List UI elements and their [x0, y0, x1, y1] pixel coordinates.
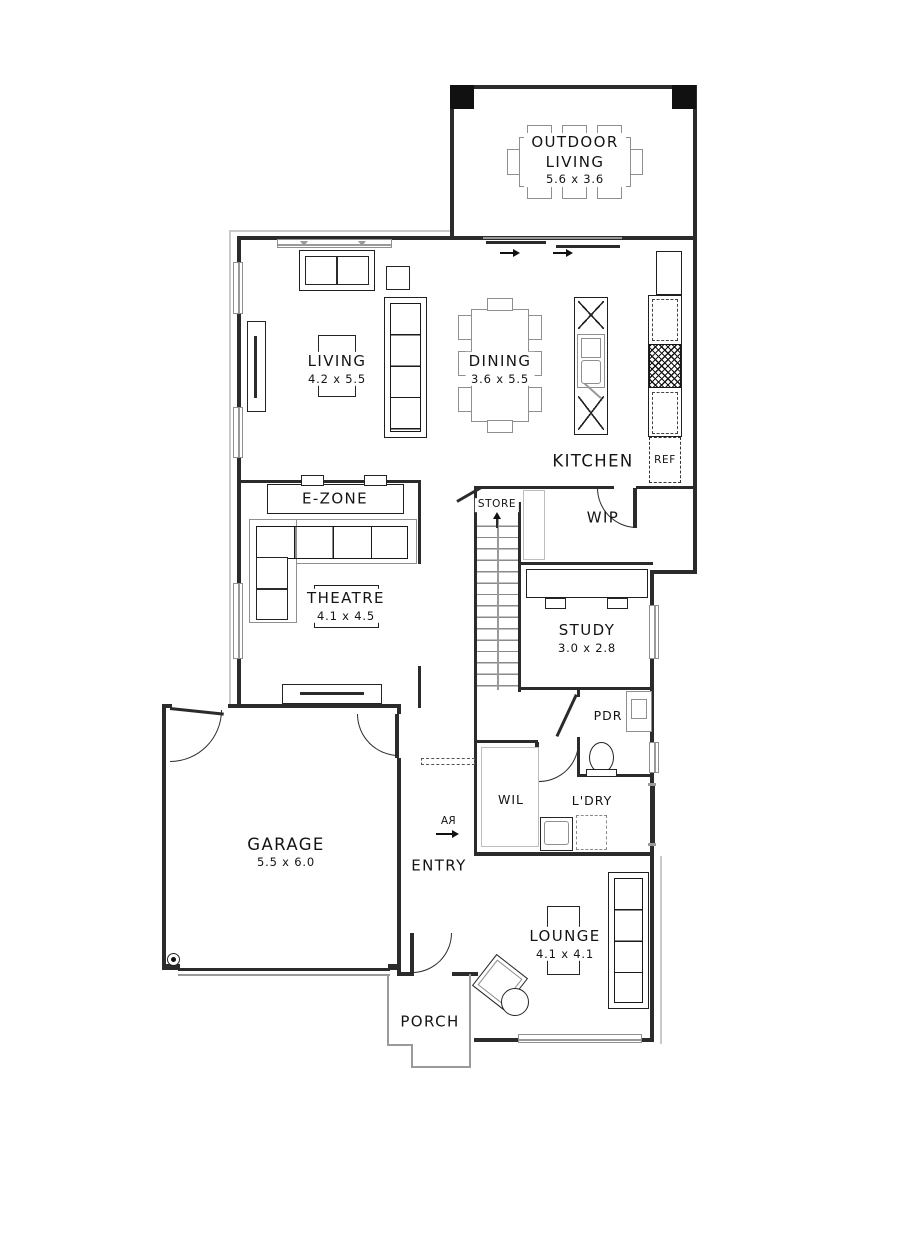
awning-marker-icon — [300, 241, 308, 246]
post-left — [450, 85, 474, 109]
label-porch: PORCH — [400, 1012, 459, 1032]
wip-shelf — [523, 490, 545, 560]
slide-arrow-icon — [513, 249, 520, 257]
appliance-name: REF — [654, 454, 676, 468]
room-name: STORE — [478, 498, 516, 512]
room-name: LIVING — [308, 352, 367, 372]
overhead-cupboard — [652, 392, 678, 434]
wall-theatre-right — [418, 480, 421, 564]
wall-hall-left — [397, 758, 401, 974]
stacker-door-panel — [556, 245, 620, 248]
outdoor-chair — [630, 149, 643, 175]
window-pdr — [649, 742, 659, 773]
wall-right-mid — [650, 574, 654, 607]
porch-step — [387, 1044, 413, 1046]
label-outdoor-living: OUTDOOR LIVING 5.6 x 3.6 — [524, 133, 626, 187]
eave-line — [229, 230, 451, 232]
wall-theatre-right — [418, 666, 421, 708]
slide-arrow — [553, 252, 566, 254]
room-dims: 4.2 x 5.5 — [308, 371, 367, 386]
porch-step — [411, 1044, 413, 1068]
window-living-top — [277, 239, 392, 248]
garage-side-door-swing — [170, 710, 222, 762]
awning-marker-icon — [358, 241, 366, 246]
wall-hall-left — [397, 704, 401, 714]
room-name: WIL — [498, 792, 524, 808]
return-air-arrow-icon — [452, 830, 459, 838]
label-ezone: E-ZONE — [299, 489, 371, 509]
room-dims: 4.1 x 4.5 — [307, 608, 385, 623]
theatre-sofa-cushions — [256, 526, 408, 559]
room-dims: 3.6 x 5.5 — [469, 371, 532, 386]
eave-line — [229, 230, 231, 708]
pdr-door-leaf — [556, 694, 578, 737]
garage-door-line — [178, 974, 390, 976]
tv-screen — [254, 336, 257, 398]
slide-arrow-icon — [566, 249, 573, 257]
window-lounge — [518, 1034, 642, 1043]
window-living-2 — [233, 407, 243, 458]
island-marker — [578, 301, 604, 329]
label-wil: WIL — [495, 792, 527, 808]
wall-right-lower — [650, 844, 654, 1042]
sink-drainer — [581, 338, 601, 358]
room-name: STUDY — [558, 621, 616, 641]
label-store: STORE — [475, 498, 519, 512]
front-door-swing — [412, 933, 452, 973]
wall-ezone-top — [237, 480, 418, 483]
wall-kitchen-bottom — [636, 486, 697, 489]
ldry-door-swing — [539, 742, 579, 782]
stacker-door-track — [483, 237, 622, 239]
ezone-chair — [301, 475, 324, 486]
pdr-basin — [631, 699, 647, 719]
wall-wip-bottom — [521, 562, 653, 565]
room-dims: 5.6 x 3.6 — [527, 172, 623, 187]
wall-step — [650, 570, 697, 574]
overhead-cupboard — [652, 299, 678, 341]
porch-wall — [387, 974, 389, 1046]
porch-wall — [469, 974, 471, 1068]
wall-garage-left — [162, 704, 166, 970]
dining-chair — [487, 298, 513, 311]
room-dims: 4.1 x 4.1 — [529, 946, 600, 961]
staircase-centerline — [497, 504, 499, 690]
room-dims: 5.5 x 6.0 — [247, 855, 324, 870]
wall-theatre-bottom — [237, 704, 397, 708]
room-name: GARAGE — [247, 834, 324, 855]
kitchen-tall-cabinet — [656, 251, 682, 295]
room-name: E-ZONE — [302, 489, 368, 509]
label-lounge: LOUNGE 4.1 x 4.1 — [526, 927, 603, 961]
label-pdr: PDR — [594, 708, 623, 724]
label-dining: DINING 3.6 x 5.5 — [466, 352, 535, 386]
cushion-divider — [257, 588, 287, 590]
room-name: THEATRE — [307, 589, 385, 609]
room-name: L'DRY — [572, 793, 613, 809]
garage-hall-door-swing — [357, 714, 399, 756]
study-desk — [526, 569, 648, 598]
label-wip: WIP — [587, 508, 620, 528]
symbol-name: RA — [440, 815, 455, 829]
floor-waste-dot — [171, 957, 176, 962]
ezone-chair — [364, 475, 387, 486]
wall-kitchen-bottom — [474, 486, 614, 489]
room-name: DINING — [469, 352, 532, 372]
wall-lounge-bottom — [474, 1038, 522, 1042]
dining-chair — [458, 387, 472, 412]
post-right — [672, 85, 696, 109]
wall-front — [452, 972, 478, 976]
room-name: PORCH — [400, 1012, 459, 1032]
room-name: ENTRY — [411, 856, 467, 876]
wall-outdoor-top — [450, 85, 696, 89]
sink-bowl — [581, 360, 601, 384]
wall-study-bottom — [521, 687, 653, 690]
ldry-external-door — [650, 786, 655, 843]
label-return-air: RA — [440, 815, 455, 829]
cooktop — [649, 344, 681, 388]
laundry-trough-bowl — [544, 821, 569, 845]
window-study — [649, 605, 659, 659]
bulkhead-dashed — [421, 758, 475, 765]
side-table — [386, 266, 410, 290]
room-name: LOUNGE — [529, 927, 600, 947]
label-kitchen: KITCHEN — [552, 450, 633, 471]
wall-stair-right — [518, 502, 521, 692]
dining-chair — [528, 387, 542, 412]
window-theatre — [233, 583, 243, 659]
cushion-divider — [336, 257, 338, 284]
room-name: OUTDOOR LIVING — [527, 133, 623, 172]
wall-right-upper — [693, 85, 697, 574]
label-garage: GARAGE 5.5 x 6.0 — [247, 834, 324, 870]
door-frame — [648, 783, 656, 786]
room-name: KITCHEN — [552, 450, 633, 471]
lounge-round-table — [501, 988, 529, 1016]
label-living: LIVING 4.2 x 5.5 — [305, 352, 370, 386]
garage-door — [178, 968, 390, 971]
room-name: WIP — [587, 508, 620, 528]
washer-space — [576, 815, 607, 850]
lounge-sofa-cushions — [614, 878, 643, 1003]
window-living-1 — [233, 262, 243, 314]
stair-up-arrow-icon — [493, 512, 501, 519]
floor-plan: OUTDOOR LIVING 5.6 x 3.6 LIVING 4.2 x 5.… — [0, 0, 901, 1246]
wall-lounge-top — [474, 852, 654, 856]
stacker-door-panel — [486, 241, 546, 244]
stair-up-arrow-stem — [496, 519, 498, 528]
study-chair — [545, 598, 566, 609]
dining-chair — [487, 420, 513, 433]
wall-wil-top — [474, 740, 538, 743]
living-sofa-long-cushions — [390, 303, 421, 432]
wall-hall-right — [474, 690, 477, 854]
toilet-cistern — [586, 769, 617, 777]
label-fridge: REF — [654, 454, 676, 468]
label-entry: ENTRY — [411, 856, 467, 876]
room-name: PDR — [594, 708, 623, 724]
dining-chair — [458, 315, 472, 340]
outdoor-chair — [562, 186, 587, 199]
return-air-arrow — [436, 833, 452, 835]
theatre-tv-screen — [300, 692, 364, 695]
study-chair — [607, 598, 628, 609]
outdoor-chair — [507, 149, 520, 175]
outdoor-chair — [597, 186, 622, 199]
slide-arrow — [500, 252, 513, 254]
outdoor-chair — [527, 186, 552, 199]
room-dims: 3.0 x 2.8 — [558, 640, 616, 655]
porch-step — [411, 1066, 471, 1068]
label-theatre: THEATRE 4.1 x 4.5 — [304, 589, 388, 623]
door-frame — [648, 843, 656, 846]
eave-line — [660, 856, 662, 1044]
label-study: STUDY 3.0 x 2.8 — [558, 621, 616, 655]
label-ldry: L'DRY — [572, 793, 613, 809]
dining-chair — [528, 315, 542, 340]
island-marker — [578, 396, 604, 430]
